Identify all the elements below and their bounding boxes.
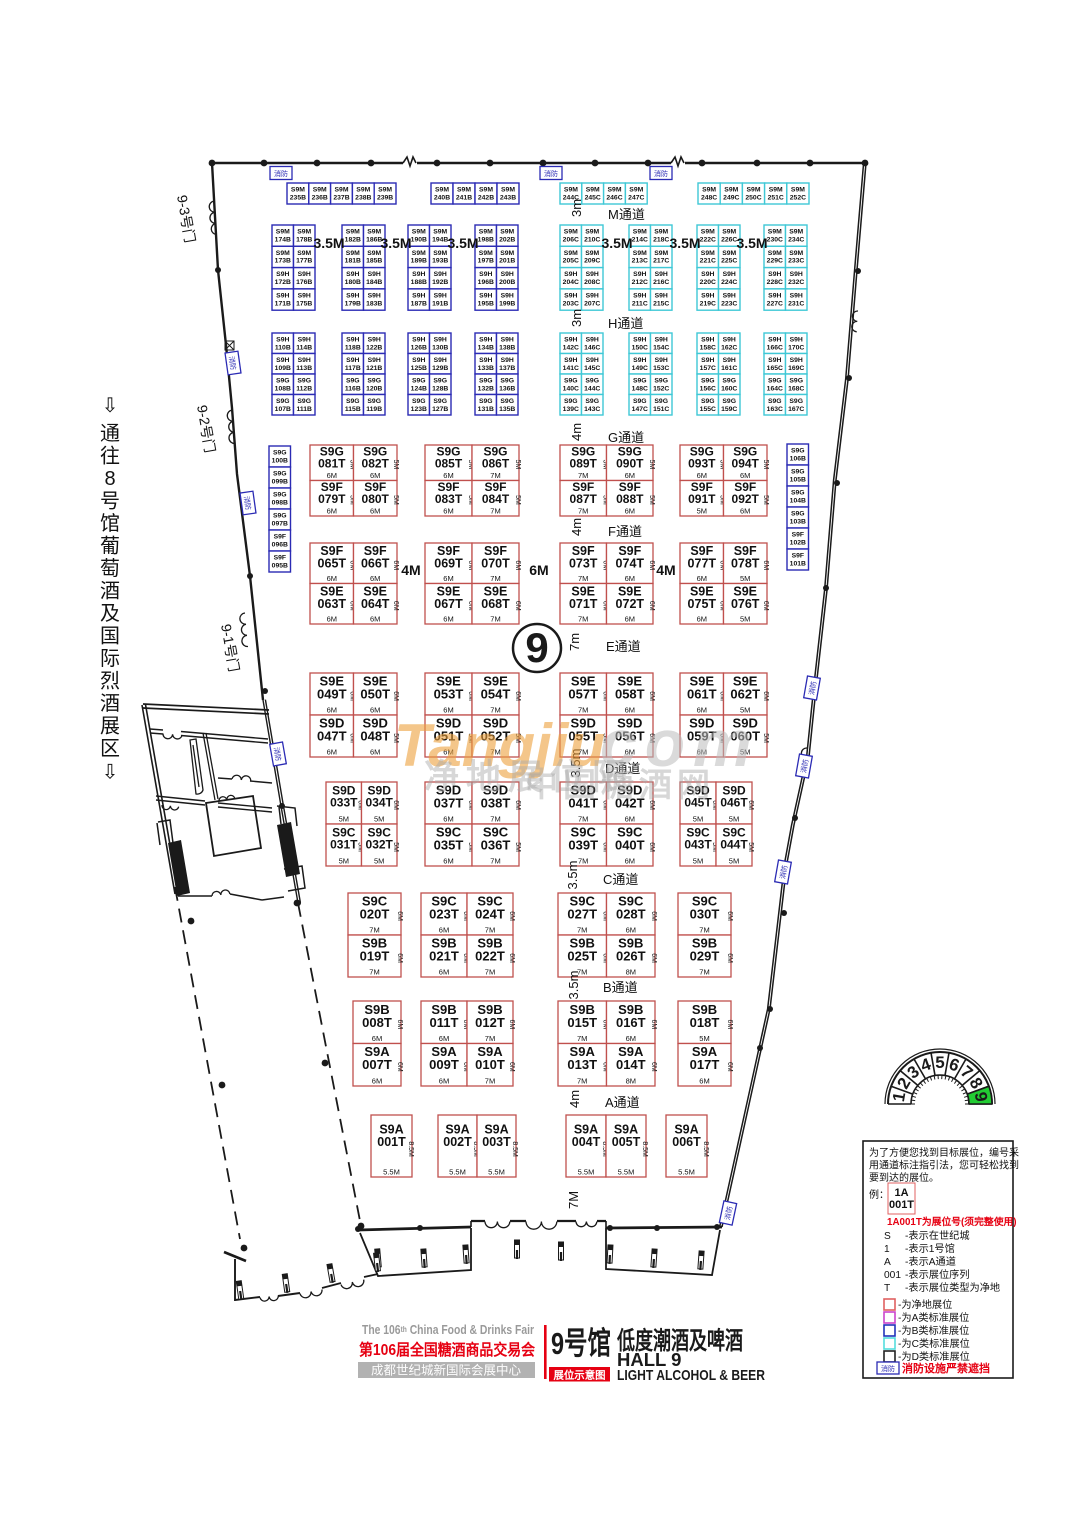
svg-text:3.5M: 3.5M (447, 235, 478, 251)
svg-text:例：: 例： (869, 1188, 889, 1201)
svg-text:6M: 6M (625, 857, 635, 866)
svg-text:126B: 126B (411, 344, 427, 351)
svg-text:S9M: S9M (768, 250, 782, 257)
svg-text:A: A (884, 1257, 891, 1268)
svg-text:197B: 197B (478, 258, 494, 265)
svg-text:S: S (884, 1231, 891, 1242)
svg-text:6M: 6M (372, 1034, 382, 1043)
svg-text:004T: 004T (572, 1135, 601, 1149)
svg-text:6M: 6M (726, 1020, 733, 1030)
svg-text:6M: 6M (740, 471, 750, 480)
svg-text:151C: 151C (653, 406, 669, 413)
svg-text:S9G: S9G (585, 398, 599, 405)
svg-text:H通道: H通道 (608, 316, 643, 331)
svg-text:6M: 6M (370, 706, 380, 715)
svg-text:6M: 6M (396, 1020, 403, 1030)
svg-text:5.5M: 5.5M (678, 1168, 695, 1177)
svg-text:S9G: S9G (412, 398, 426, 405)
svg-text:210C: 210C (584, 236, 600, 243)
svg-text:243B: 243B (500, 194, 516, 201)
svg-text:6M: 6M (626, 1034, 636, 1043)
svg-text:142C: 142C (563, 344, 579, 351)
svg-text:S9G: S9G (654, 398, 668, 405)
svg-text:029T: 029T (690, 949, 720, 964)
svg-text:7M: 7M (699, 968, 709, 977)
svg-text:204C: 204C (563, 279, 579, 286)
svg-text:6M: 6M (697, 574, 707, 583)
svg-text:080T: 080T (362, 492, 390, 506)
svg-text:001T: 001T (377, 1135, 406, 1149)
svg-text:159C: 159C (721, 406, 737, 413)
svg-text:5M: 5M (762, 495, 769, 505)
svg-text:E通道: E通道 (606, 639, 641, 654)
svg-text:221C: 221C (700, 258, 716, 265)
svg-text:6M: 6M (747, 800, 754, 810)
svg-text:4M: 4M (401, 562, 420, 578)
svg-text:199B: 199B (499, 300, 515, 307)
svg-text:S9H: S9H (434, 357, 447, 364)
svg-text:S9G: S9G (500, 378, 514, 385)
svg-text:192B: 192B (432, 279, 448, 286)
svg-text:S9M: S9M (789, 250, 803, 257)
svg-text:7M: 7M (485, 968, 495, 977)
svg-text:S9G: S9G (346, 398, 360, 405)
svg-text:002T: 002T (443, 1135, 472, 1149)
svg-text:6M: 6M (529, 562, 548, 578)
svg-text:S9G: S9G (791, 448, 805, 455)
svg-text:115B: 115B (345, 406, 361, 413)
svg-text:111B: 111B (296, 406, 312, 413)
svg-text:032T: 032T (366, 838, 394, 852)
svg-text:150C: 150C (632, 344, 648, 351)
svg-text:S9M: S9M (479, 250, 493, 257)
svg-text:展: 展 (100, 716, 120, 738)
svg-text:6M: 6M (443, 471, 453, 480)
svg-text:5M: 5M (740, 574, 750, 583)
svg-text:7M: 7M (369, 926, 379, 935)
svg-text:107B: 107B (275, 406, 291, 413)
svg-text:216C: 216C (653, 279, 669, 286)
svg-text:3.5m: 3.5m (566, 971, 581, 1000)
svg-text:S9H: S9H (276, 357, 289, 364)
svg-text:054T: 054T (481, 687, 511, 702)
svg-text:5.5M: 5.5M (449, 1168, 466, 1177)
svg-text:048T: 048T (360, 729, 390, 744)
svg-text:S9M: S9M (501, 187, 515, 194)
svg-text:184B: 184B (366, 279, 382, 286)
svg-text:153C: 153C (653, 365, 669, 372)
svg-text:6M: 6M (648, 560, 655, 570)
svg-text:5.5M: 5.5M (578, 1168, 595, 1177)
svg-text:S9M: S9M (479, 229, 493, 236)
svg-text:079T: 079T (318, 492, 346, 506)
svg-text:S9G: S9G (791, 490, 805, 497)
svg-text:展位示意图: 展位示意图 (554, 1369, 606, 1382)
svg-text:167C: 167C (788, 406, 804, 413)
svg-text:S9M: S9M (564, 187, 578, 194)
svg-text:075T: 075T (688, 597, 717, 611)
svg-text:T: T (884, 1283, 890, 1294)
svg-text:S9M: S9M (412, 229, 426, 236)
svg-text:163C: 163C (767, 406, 783, 413)
svg-text:S9G: S9G (273, 450, 287, 457)
svg-text:S9H: S9H (633, 293, 646, 300)
svg-text:131B: 131B (478, 406, 494, 413)
svg-text:S9H: S9H (412, 293, 425, 300)
svg-text:S9M: S9M (769, 187, 783, 194)
svg-text:S9G: S9G (564, 398, 578, 405)
svg-text:消防: 消防 (881, 1364, 895, 1373)
svg-text:238B: 238B (355, 194, 371, 201)
svg-text:6M: 6M (514, 800, 521, 810)
svg-text:5M: 5M (514, 842, 521, 852)
svg-text:011T: 011T (430, 1015, 459, 1030)
svg-text:S9G: S9G (564, 378, 578, 385)
svg-text:S9H: S9H (768, 271, 781, 278)
svg-text:129B: 129B (432, 365, 448, 372)
svg-text:230C: 230C (767, 236, 783, 243)
svg-text:6M: 6M (726, 1062, 733, 1072)
svg-text:076T: 076T (731, 597, 760, 611)
svg-text:S9H: S9H (701, 337, 714, 344)
svg-text:S9H: S9H (479, 293, 492, 300)
svg-text:224C: 224C (721, 279, 737, 286)
svg-text:179B: 179B (345, 300, 361, 307)
svg-text:181B: 181B (345, 258, 361, 265)
svg-text:6M: 6M (327, 748, 337, 757)
svg-text:S9M: S9M (724, 187, 738, 194)
svg-text:5M: 5M (392, 842, 399, 852)
svg-text:6M: 6M (514, 601, 521, 611)
svg-text:165C: 165C (767, 365, 783, 372)
svg-text:S9G: S9G (346, 378, 360, 385)
svg-text:1: 1 (884, 1244, 890, 1255)
svg-text:S9H: S9H (586, 337, 599, 344)
svg-text:⇩: ⇩ (102, 762, 119, 784)
svg-text:S9H: S9H (768, 337, 781, 344)
svg-text:7M: 7M (577, 1077, 587, 1086)
svg-text:6M: 6M (762, 560, 769, 570)
svg-text:6M: 6M (396, 911, 403, 921)
svg-text:166C: 166C (767, 344, 783, 351)
svg-text:酒: 酒 (100, 692, 120, 715)
svg-text:071T: 071T (569, 597, 598, 611)
svg-text:S9H: S9H (586, 271, 599, 278)
svg-text:130B: 130B (432, 344, 448, 351)
svg-text:往: 往 (100, 445, 120, 468)
svg-text:国: 国 (100, 626, 120, 648)
svg-text:S9M: S9M (608, 187, 622, 194)
svg-text:013T: 013T (567, 1057, 597, 1072)
svg-text:125B: 125B (411, 365, 427, 372)
svg-text:S9G: S9G (273, 492, 287, 499)
svg-text:112B: 112B (296, 385, 312, 392)
svg-text:S9M: S9M (346, 229, 360, 236)
svg-text:S9H: S9H (723, 293, 736, 300)
svg-text:6M: 6M (443, 507, 453, 516)
svg-text:007T: 007T (362, 1057, 392, 1072)
svg-text:第106届全国糖酒商品交易会: 第106届全国糖酒商品交易会 (359, 1340, 535, 1359)
svg-text:中国糖酒网: 中国糖酒网 (525, 766, 715, 803)
svg-text:S9M: S9M (747, 187, 761, 194)
svg-text:247C: 247C (628, 194, 644, 201)
svg-text:6M: 6M (327, 471, 337, 480)
svg-text:S9M: S9M (335, 187, 349, 194)
svg-text:⇩: ⇩ (102, 395, 119, 417)
svg-text:246C: 246C (606, 194, 622, 201)
svg-text:6M: 6M (648, 691, 655, 701)
svg-text:成都世纪城新国际会展中心: 成都世纪城新国际会展中心 (371, 1363, 521, 1378)
svg-text:043T: 043T (684, 838, 712, 852)
svg-text:084T: 084T (482, 492, 510, 506)
svg-text:206C: 206C (563, 236, 579, 243)
svg-text:S9H: S9H (790, 357, 803, 364)
svg-text:168C: 168C (788, 385, 804, 392)
svg-text:S9H: S9H (633, 337, 646, 344)
svg-text:211C: 211C (632, 300, 648, 307)
svg-text:6M: 6M (370, 748, 380, 757)
svg-text:S9H: S9H (346, 337, 359, 344)
svg-text:7M: 7M (485, 1077, 495, 1086)
svg-text:际: 际 (100, 647, 120, 670)
svg-text:4m: 4m (569, 423, 584, 441)
svg-text:147C: 147C (632, 406, 648, 413)
svg-text:064T: 064T (361, 597, 390, 611)
svg-text:073T: 073T (569, 557, 598, 571)
svg-text:6M: 6M (327, 706, 337, 715)
svg-text:213C: 213C (632, 258, 648, 265)
svg-text:190B: 190B (411, 236, 427, 243)
svg-text:090T: 090T (616, 457, 644, 471)
svg-text:S9M: S9M (564, 250, 578, 257)
svg-text:128B: 128B (432, 385, 448, 392)
svg-text:025T: 025T (567, 949, 597, 964)
svg-text:S9M: S9M (585, 229, 599, 236)
svg-text:003T: 003T (482, 1135, 511, 1149)
svg-text:016T: 016T (616, 1015, 646, 1030)
svg-text:132B: 132B (478, 385, 494, 392)
svg-text:7M: 7M (578, 574, 588, 583)
svg-text:5.5M: 5.5M (488, 1168, 505, 1177)
svg-text:S9H: S9H (633, 271, 646, 278)
svg-text:6M: 6M (625, 815, 635, 824)
svg-text:S9M: S9M (585, 250, 599, 257)
svg-text:S9H: S9H (768, 357, 781, 364)
svg-text:S9H: S9H (564, 271, 577, 278)
svg-text:3.5M: 3.5M (669, 235, 700, 251)
svg-text:S9H: S9H (276, 337, 289, 344)
svg-text:6M: 6M (625, 471, 635, 480)
svg-text:121B: 121B (366, 365, 382, 372)
svg-text:6M: 6M (508, 911, 515, 921)
svg-text:5.5M: 5.5M (618, 1168, 635, 1177)
svg-text:200B: 200B (499, 279, 515, 286)
svg-text:108B: 108B (275, 385, 291, 392)
svg-text:027T: 027T (567, 907, 597, 922)
svg-text:S9G: S9G (701, 378, 715, 385)
svg-text:237B: 237B (333, 194, 349, 201)
svg-text:7M: 7M (490, 507, 500, 516)
svg-text:252C: 252C (790, 194, 806, 201)
svg-text:149C: 149C (632, 365, 648, 372)
svg-text:162C: 162C (721, 344, 737, 351)
svg-text:7M: 7M (578, 815, 588, 824)
svg-text:6M: 6M (392, 800, 399, 810)
svg-text:113B: 113B (296, 365, 312, 372)
svg-text:020T: 020T (360, 907, 390, 922)
svg-text:S9G: S9G (500, 398, 514, 405)
svg-text:101B: 101B (790, 560, 806, 567)
svg-text:6M: 6M (648, 842, 655, 852)
svg-text:160C: 160C (721, 385, 737, 392)
svg-text:6M: 6M (648, 601, 655, 611)
svg-text:1A001T为展位号(须完整使用): 1A001T为展位号(须完整使用) (887, 1215, 1017, 1228)
svg-text:S9H: S9H (655, 337, 668, 344)
svg-text:S9H: S9H (586, 357, 599, 364)
svg-text:050T: 050T (360, 687, 390, 702)
svg-text:201B: 201B (499, 258, 515, 265)
svg-text:S9H: S9H (586, 293, 599, 300)
svg-text:177B: 177B (296, 258, 312, 265)
svg-text:S9M: S9M (433, 250, 447, 257)
svg-text:065T: 065T (318, 557, 347, 571)
svg-text:014T: 014T (616, 1057, 646, 1072)
svg-text:7M: 7M (578, 471, 588, 480)
svg-text:S9H: S9H (768, 293, 781, 300)
svg-text:S9H: S9H (790, 337, 803, 344)
svg-text:萄: 萄 (100, 557, 120, 580)
svg-text:040T: 040T (615, 838, 645, 853)
svg-text:S9H: S9H (479, 357, 492, 364)
svg-text:215C: 215C (653, 300, 669, 307)
svg-text:6M: 6M (697, 615, 707, 624)
svg-text:144C: 144C (584, 385, 600, 392)
svg-text:及: 及 (100, 603, 120, 625)
svg-text:通: 通 (100, 422, 120, 445)
svg-text:088T: 088T (616, 492, 644, 506)
svg-text:C通道: C通道 (603, 872, 638, 887)
svg-text:023T: 023T (429, 907, 459, 922)
svg-text:137B: 137B (499, 365, 515, 372)
svg-text:8.5M: 8.5M (407, 1141, 414, 1157)
svg-text:5.5M: 5.5M (383, 1168, 400, 1177)
svg-text:S9H: S9H (434, 271, 447, 278)
svg-text:消防: 消防 (274, 169, 288, 178)
svg-text:-表示A通道: -表示A通道 (905, 1255, 956, 1268)
svg-text:S9M: S9M (291, 187, 305, 194)
svg-text:196B: 196B (478, 279, 494, 286)
svg-text:231C: 231C (788, 300, 804, 307)
svg-text:S9H: S9H (501, 293, 514, 300)
svg-text:001: 001 (884, 1270, 901, 1281)
svg-text:S9H: S9H (298, 337, 311, 344)
svg-text:188B: 188B (411, 279, 427, 286)
svg-text:3.5M: 3.5M (380, 235, 411, 251)
svg-text:S9H: S9H (298, 357, 311, 364)
svg-text:S9H: S9H (501, 271, 514, 278)
svg-text:3.5m: 3.5m (565, 861, 580, 890)
svg-text:6M: 6M (625, 574, 635, 583)
svg-text:5M: 5M (697, 507, 707, 516)
svg-text:6M: 6M (327, 507, 337, 516)
svg-text:消防设施严禁遮挡: 消防设施严禁遮挡 (902, 1361, 990, 1375)
svg-text:119B: 119B (366, 406, 382, 413)
svg-text:S9M: S9M (479, 187, 493, 194)
svg-text:S9G: S9G (722, 378, 736, 385)
svg-text:036T: 036T (481, 838, 511, 853)
svg-text:S9M: S9M (500, 229, 514, 236)
svg-text:S9F: S9F (274, 534, 286, 541)
svg-text:074T: 074T (616, 557, 645, 571)
svg-text:068T: 068T (481, 597, 510, 611)
svg-text:223C: 223C (721, 300, 737, 307)
svg-text:S9H: S9H (564, 357, 577, 364)
svg-text:6M: 6M (697, 471, 707, 480)
svg-text:082T: 082T (362, 457, 390, 471)
svg-text:6M: 6M (740, 507, 750, 516)
svg-text:202B: 202B (499, 236, 515, 243)
svg-text:6M: 6M (370, 507, 380, 516)
svg-text:S9F: S9F (274, 555, 286, 562)
svg-text:葡: 葡 (100, 535, 120, 558)
svg-text:烈: 烈 (100, 670, 120, 693)
svg-text:102B: 102B (790, 539, 806, 546)
svg-text:6M: 6M (327, 615, 337, 624)
svg-text:S9G: S9G (297, 398, 311, 405)
svg-text:S9H: S9H (723, 357, 736, 364)
svg-text:5M: 5M (762, 460, 769, 470)
svg-text:134B: 134B (478, 344, 494, 351)
svg-text:005T: 005T (612, 1135, 641, 1149)
svg-text:209C: 209C (584, 258, 600, 265)
svg-text:-为C类标准展位: -为C类标准展位 (898, 1337, 970, 1350)
svg-text:6M: 6M (392, 560, 399, 570)
svg-text:093T: 093T (688, 457, 716, 471)
svg-text:7M: 7M (578, 615, 588, 624)
svg-text:7M: 7M (578, 507, 588, 516)
svg-text:001T: 001T (889, 1199, 914, 1211)
svg-text:S9G: S9G (768, 378, 782, 385)
svg-text:-为净地展位: -为净地展位 (898, 1298, 952, 1311)
svg-text:117B: 117B (345, 365, 361, 372)
svg-text:248C: 248C (701, 194, 717, 201)
svg-text:6M: 6M (508, 1062, 515, 1072)
svg-text:5M: 5M (374, 815, 384, 824)
svg-text:S9M: S9M (768, 229, 782, 236)
svg-text:173B: 173B (275, 258, 291, 265)
svg-text:155C: 155C (700, 406, 716, 413)
svg-text:9号馆: 9号馆 (551, 1326, 611, 1361)
svg-text:087T: 087T (570, 492, 598, 506)
svg-text:S9M: S9M (701, 250, 715, 257)
svg-text:-为B类标准展位: -为B类标准展位 (898, 1324, 969, 1337)
svg-text:5M: 5M (392, 495, 399, 505)
svg-text:S9G: S9G (367, 378, 381, 385)
svg-text:S9M: S9M (789, 229, 803, 236)
svg-text:7M: 7M (490, 857, 500, 866)
svg-text:227C: 227C (767, 300, 783, 307)
svg-text:6M: 6M (370, 615, 380, 624)
svg-text:S9H: S9H (479, 271, 492, 278)
svg-text:098B: 098B (272, 499, 288, 506)
svg-text:6M: 6M (508, 1020, 515, 1030)
svg-text:S9G: S9G (791, 511, 805, 518)
svg-text:010T: 010T (475, 1057, 505, 1072)
svg-text:012T: 012T (475, 1015, 505, 1030)
svg-text:193B: 193B (432, 258, 448, 265)
svg-text:024T: 024T (475, 907, 505, 922)
svg-text:S9H: S9H (723, 337, 736, 344)
